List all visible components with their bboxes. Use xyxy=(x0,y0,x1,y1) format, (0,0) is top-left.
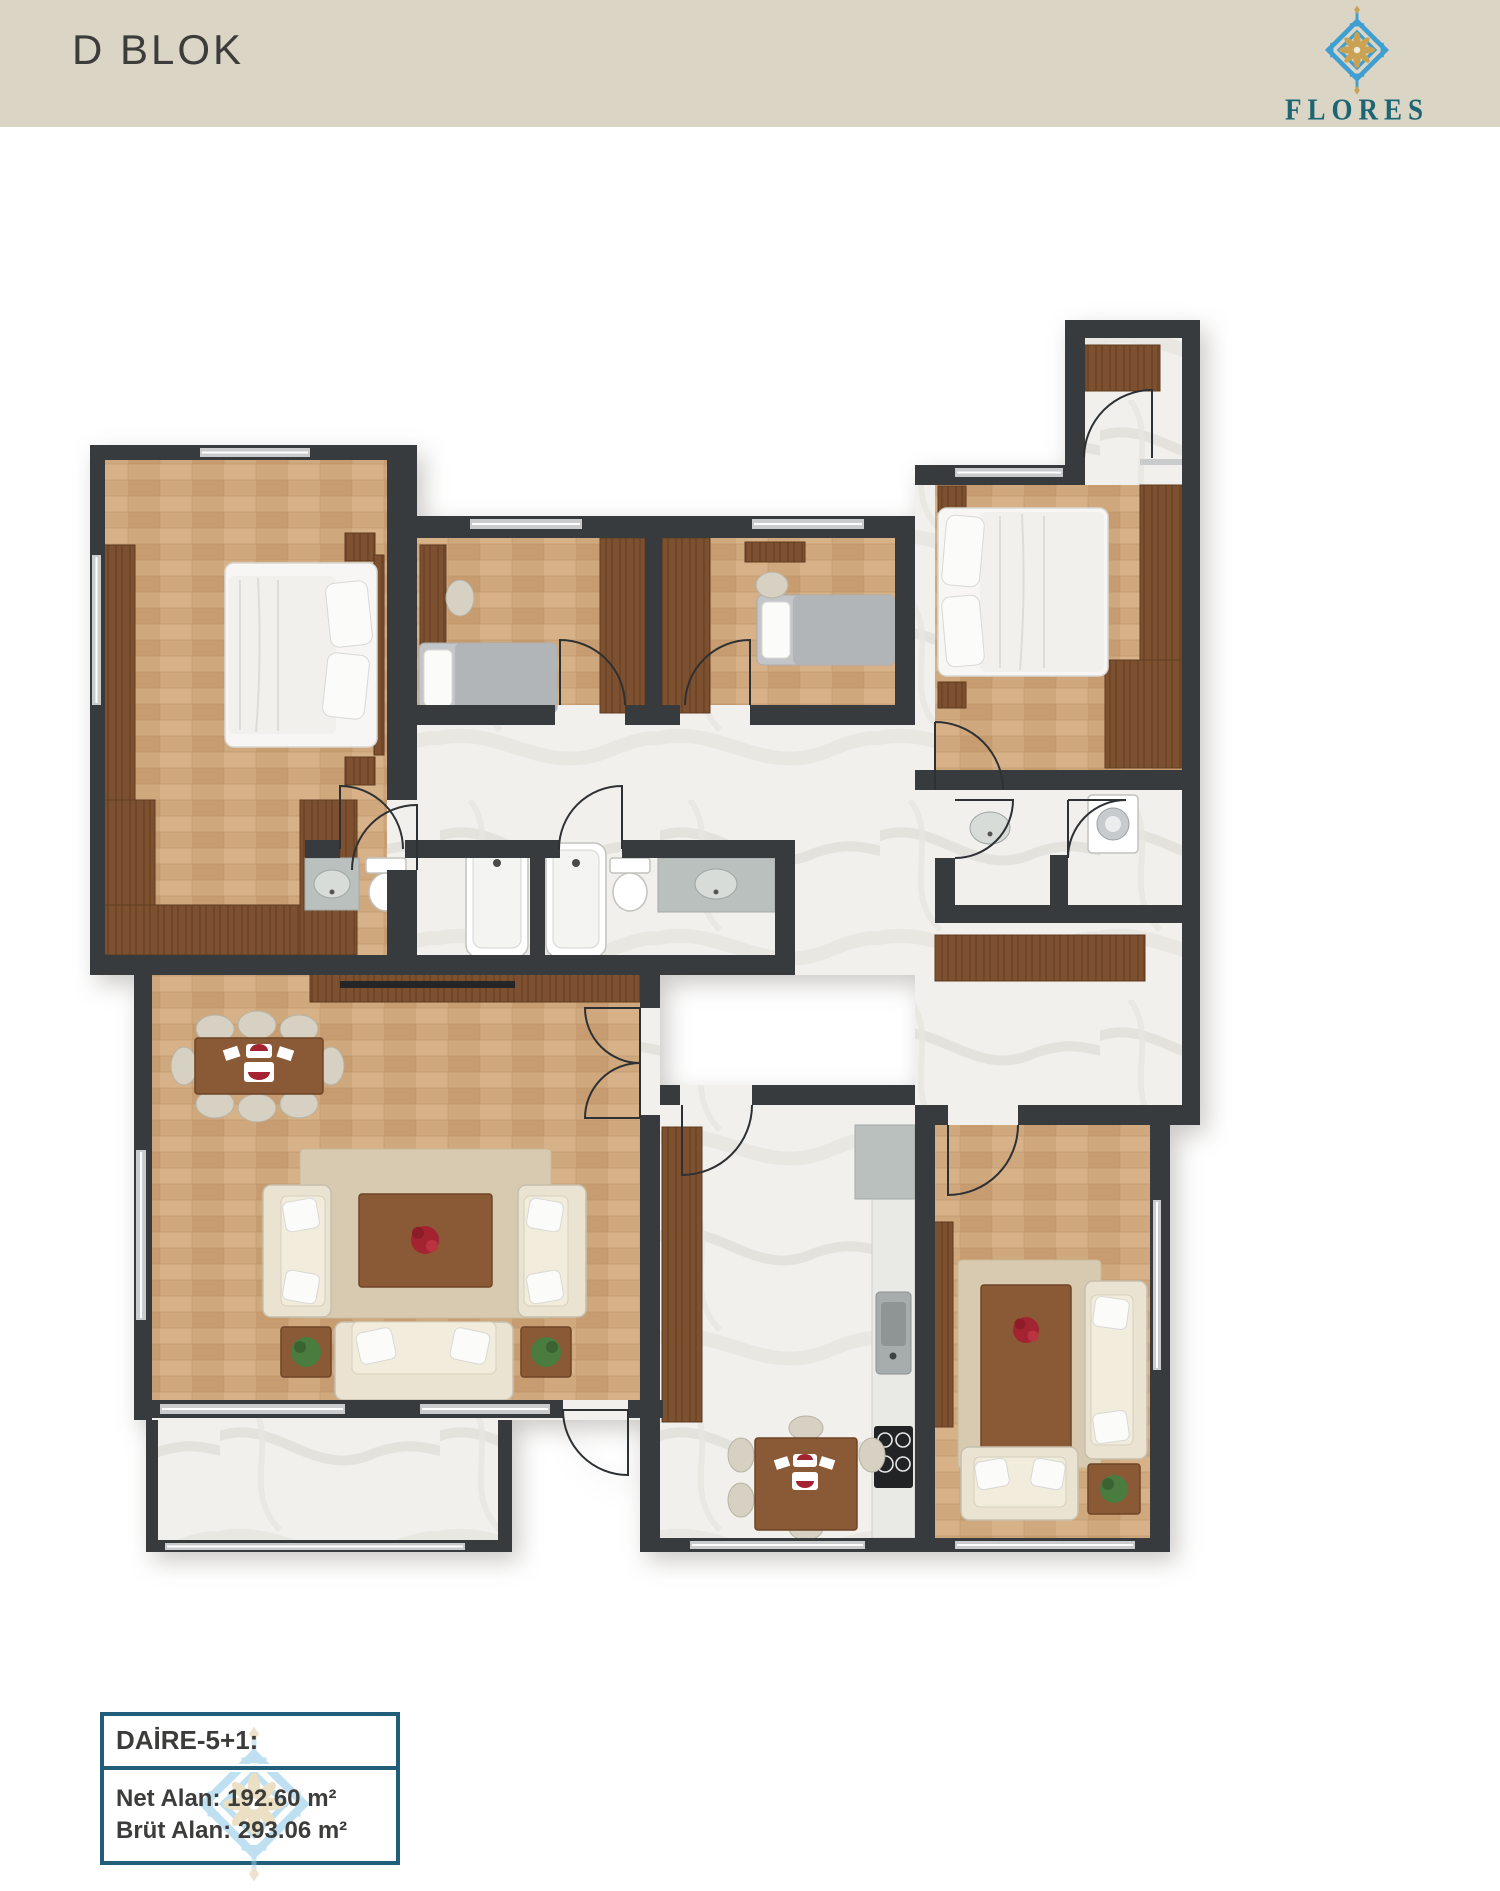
gross-area-value: Brüt Alan: 293.06 m² xyxy=(116,1815,396,1847)
entry-threshold xyxy=(1140,459,1184,465)
coffee-table xyxy=(359,1194,492,1287)
single-bed-2 xyxy=(419,643,557,713)
apartment-info-box: DAİRE-5+1: Net Alan: 192.60 m² Brüt Alan… xyxy=(100,1712,400,1865)
floor-plan xyxy=(0,0,1500,1891)
single-bed-3 xyxy=(757,595,895,665)
info-divider xyxy=(104,1764,396,1772)
net-area-value: Net Alan: 192.60 m² xyxy=(116,1783,396,1815)
double-bed-1 xyxy=(225,555,384,755)
apartment-type-label: DAİRE-5+1: xyxy=(104,1716,396,1762)
tv-on-console xyxy=(340,981,515,988)
double-bed-master xyxy=(938,508,1108,676)
dining-table-8 xyxy=(171,1011,344,1122)
family-room xyxy=(961,1281,1147,1520)
